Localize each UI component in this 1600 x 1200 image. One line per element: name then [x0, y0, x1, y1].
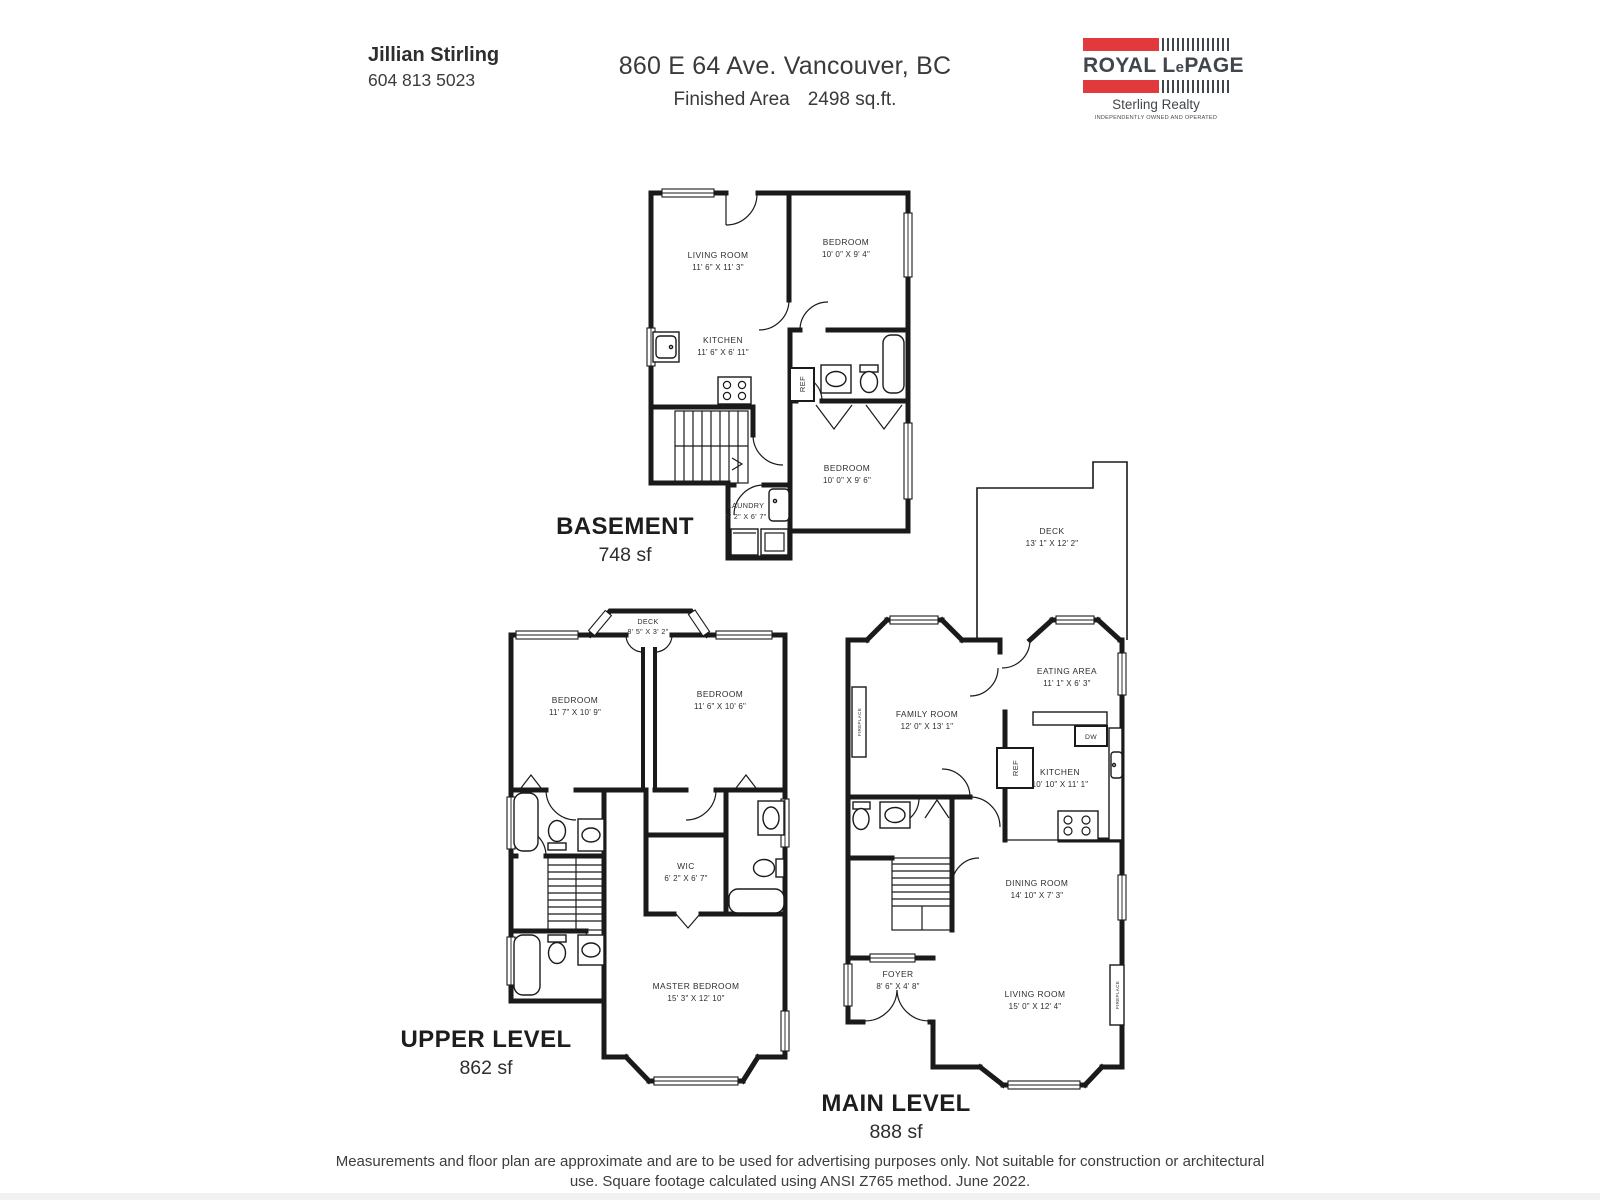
svg-text:KITCHEN: KITCHEN: [1040, 767, 1080, 777]
agent-phone: 604 813 5023: [368, 70, 499, 91]
stove-icon: [718, 377, 751, 404]
svg-text:REF: REF: [1011, 760, 1020, 776]
basement-level-label: BASEMENT 748 sf: [495, 513, 755, 567]
main-stairs: [892, 858, 952, 930]
svg-text:14' 10" X 7' 3": 14' 10" X 7' 3": [1011, 891, 1064, 900]
svg-text:13' 1" X 12' 2": 13' 1" X 12' 2": [1026, 539, 1079, 548]
main-title: MAIN LEVEL: [766, 1090, 1026, 1118]
kitchen-faucet: [669, 345, 672, 348]
logo-word-page: PAGE: [1184, 54, 1244, 77]
dishwasher-icon: DW: [1075, 726, 1107, 746]
royal-lepage-logo: ROYAL LePAGE Sterling Realty INDEPENDENT…: [1083, 38, 1229, 121]
basement-title: BASEMENT: [495, 513, 755, 541]
main-floor-plan: FIREPLACE FIREPLACE DW REF: [830, 450, 1132, 1095]
svg-text:11' 6" X 6' 11": 11' 6" X 6' 11": [697, 348, 748, 357]
room-label-foyer: FOYER 8' 6" X 4' 8": [876, 969, 919, 991]
logo-stripes-top: [1162, 38, 1229, 51]
logo-red-bar-bottom: [1083, 80, 1159, 93]
svg-text:EATING AREA: EATING AREA: [1037, 666, 1097, 676]
powder-door-chevron: [925, 800, 949, 818]
room-label-living-room: LIVING ROOM 11' 6" X 11' 3": [688, 250, 749, 272]
room-label-kitchen: KITCHEN 11' 6" X 6' 11": [697, 335, 748, 357]
finished-area-value: 2498 sq.ft.: [808, 89, 897, 110]
upper-bath2-fixtures: [514, 935, 604, 995]
chimney-wall: [643, 649, 655, 790]
bathtub-icon: [883, 335, 904, 393]
svg-text:LAUNDRY: LAUNDRY: [728, 501, 765, 510]
svg-text:KITCHEN: KITCHEN: [703, 335, 743, 345]
logo-red-bar-top: [1083, 38, 1159, 51]
svg-text:FIREPLACE: FIREPLACE: [857, 708, 862, 736]
svg-text:12' 0" X 13' 1": 12' 0" X 13' 1": [901, 722, 954, 731]
upper-level-label: UPPER LEVEL 862 sf: [356, 1026, 616, 1080]
page-bottom-edge: [0, 1193, 1600, 1200]
front-door-right-arc: [897, 990, 929, 1021]
svg-text:LIVING ROOM: LIVING ROOM: [1005, 989, 1066, 999]
logo-office-name: Sterling Realty: [1083, 97, 1229, 112]
basement-area: 748 sf: [495, 544, 755, 567]
svg-text:DECK: DECK: [1039, 526, 1064, 536]
bath-sink: [826, 372, 846, 387]
main-area: 888 sf: [766, 1121, 1026, 1144]
svg-text:DECK: DECK: [637, 617, 658, 626]
kitchen-faucet: [1113, 764, 1116, 767]
svg-text:8' 5" X 3' 2": 8' 5" X 3' 2": [627, 627, 668, 636]
upper-bath1-fixtures: [514, 793, 604, 851]
svg-text:11' 7" X 10' 9": 11' 7" X 10' 9": [549, 708, 601, 717]
stove-icon: [1058, 811, 1098, 840]
fireplace-right: FIREPLACE: [1110, 965, 1124, 1025]
logo-top-bars: [1083, 38, 1229, 51]
room-label-family-room: FAMILY ROOM 12' 0" X 13' 1": [896, 709, 958, 731]
room-label-wic: WIC 6' 2" X 6' 7": [664, 861, 707, 883]
svg-text:11' 6" X 10' 6": 11' 6" X 10' 6": [694, 702, 746, 711]
toilet-icon: [548, 821, 566, 851]
toilet-icon: [853, 802, 870, 830]
kitchen-counter-top: [1033, 712, 1107, 725]
toilet-icon: [754, 859, 785, 877]
deck-outline: [977, 462, 1127, 640]
basement-closet-chevrons: [816, 405, 902, 429]
room-label-bedroom-right: BEDROOM 11' 6" X 10' 6": [694, 689, 746, 711]
sink: [763, 807, 779, 829]
svg-text:BEDROOM: BEDROOM: [697, 689, 743, 699]
room-label-deck: DECK 8' 5" X 3' 2": [627, 617, 668, 636]
sink: [885, 808, 905, 823]
kitchen-counter-right: [1109, 728, 1122, 840]
basement-bath-fixtures: [821, 335, 904, 393]
sink: [582, 828, 600, 842]
main-level-label: MAIN LEVEL 888 sf: [766, 1090, 1026, 1144]
svg-text:BEDROOM: BEDROOM: [823, 237, 869, 247]
fireplace-left: FIREPLACE: [852, 687, 866, 757]
master-door-chevron: [676, 914, 700, 928]
upper-area: 862 sf: [356, 1057, 616, 1080]
room-label-eating-area: EATING AREA 11' 1" X 6' 3": [1037, 666, 1097, 688]
main-room-labels: DECK 13' 1" X 12' 2" EATING AREA 11' 1" …: [876, 526, 1097, 1011]
room-label-living-room: LIVING ROOM 15' 0" X 12' 4": [1005, 989, 1066, 1011]
svg-text:11' 1" X 6' 3": 11' 1" X 6' 3": [1043, 679, 1090, 688]
disclaimer-line-1: Measurements and floor plan are approxim…: [0, 1152, 1600, 1172]
svg-text:11' 6" X 11' 3": 11' 6" X 11' 3": [692, 263, 743, 272]
svg-text:FIREPLACE: FIREPLACE: [1115, 981, 1120, 1009]
bathtub-icon: [729, 889, 784, 913]
svg-text:8' 6" X 4' 8": 8' 6" X 4' 8": [876, 982, 919, 991]
toilet-icon: [548, 935, 566, 964]
agent-name: Jillian Stirling: [368, 44, 499, 67]
upper-floor-plan: DECK 8' 5" X 3' 2" BEDROOM 11' 7" X 10' …: [486, 591, 796, 1091]
stair-direction-arrow: [732, 458, 742, 470]
svg-text:FOYER: FOYER: [882, 969, 913, 979]
finished-area: Finished Area2498 sq.ft.: [585, 89, 985, 111]
room-label-bedroom-left: BEDROOM 11' 7" X 10' 9": [549, 695, 601, 717]
svg-text:10' 0" X 9' 4": 10' 0" X 9' 4": [822, 250, 870, 259]
room-label-dining-room: DINING ROOM 14' 10" X 7' 3": [1006, 878, 1069, 900]
logo-tagline: INDEPENDENTLY OWNED AND OPERATED: [1083, 115, 1229, 121]
main-walls: [848, 620, 1122, 1085]
svg-text:15' 3" X 12' 10": 15' 3" X 12' 10": [667, 994, 724, 1003]
upper-closet-chevrons: [521, 775, 756, 788]
room-label-deck: DECK 13' 1" X 12' 2": [1026, 526, 1079, 548]
svg-text:10' 10" X 11' 1": 10' 10" X 11' 1": [1032, 780, 1089, 789]
finished-area-label: Finished Area: [674, 89, 790, 110]
room-label-kitchen: KITCHEN 10' 10" X 11' 1": [1032, 767, 1089, 789]
logo-bottom-bars: [1083, 80, 1229, 93]
refrigerator-icon: REF: [997, 748, 1033, 788]
ref-label: REF: [798, 376, 807, 392]
disclaimer: Measurements and floor plan are approxim…: [0, 1152, 1600, 1191]
main-powder-fixtures: [853, 802, 910, 830]
property-address: 860 E 64 Ave. Vancouver, BC: [585, 52, 985, 81]
upper-title: UPPER LEVEL: [356, 1026, 616, 1054]
svg-text:WIC: WIC: [677, 861, 695, 871]
toilet-icon: [860, 365, 878, 393]
svg-text:6' 2" X 6' 7": 6' 2" X 6' 7": [664, 874, 707, 883]
bathtub-icon: [514, 935, 540, 995]
svg-text:LIVING ROOM: LIVING ROOM: [688, 250, 749, 260]
basement-stairs: [675, 411, 748, 483]
svg-text:BEDROOM: BEDROOM: [552, 695, 598, 705]
address-block: 860 E 64 Ave. Vancouver, BC Finished Are…: [585, 52, 985, 111]
upper-master-bath-fixtures: [729, 801, 784, 913]
room-label-bedroom-1: BEDROOM 10' 0" X 9' 4": [822, 237, 870, 259]
disclaimer-line-2: use. Square footage calculated using ANS…: [0, 1172, 1600, 1192]
svg-text:DINING ROOM: DINING ROOM: [1006, 878, 1069, 888]
logo-wordmark: ROYAL LePAGE: [1083, 54, 1229, 78]
basement-ref-closet: REF: [790, 368, 814, 401]
bathtub-icon: [514, 793, 538, 851]
logo-stripes-bottom: [1162, 80, 1229, 93]
svg-text:FAMILY ROOM: FAMILY ROOM: [896, 709, 958, 719]
floor-plan-page: Jillian Stirling 604 813 5023 860 E 64 A…: [0, 0, 1600, 1200]
svg-text:15' 0" X 12' 4": 15' 0" X 12' 4": [1009, 1002, 1062, 1011]
room-label-master-bedroom: MASTER BEDROOM 15' 3" X 12' 10": [653, 981, 740, 1003]
sink: [582, 943, 600, 957]
svg-text:MASTER BEDROOM: MASTER BEDROOM: [653, 981, 740, 991]
agent-block: Jillian Stirling 604 813 5023: [368, 44, 499, 91]
laundry-sink: [769, 489, 789, 521]
logo-word-royal-l: ROYAL L: [1083, 54, 1176, 77]
svg-text:DW: DW: [1085, 734, 1097, 741]
upper-stairs: [548, 857, 604, 930]
front-door-left-arc: [865, 990, 897, 1021]
